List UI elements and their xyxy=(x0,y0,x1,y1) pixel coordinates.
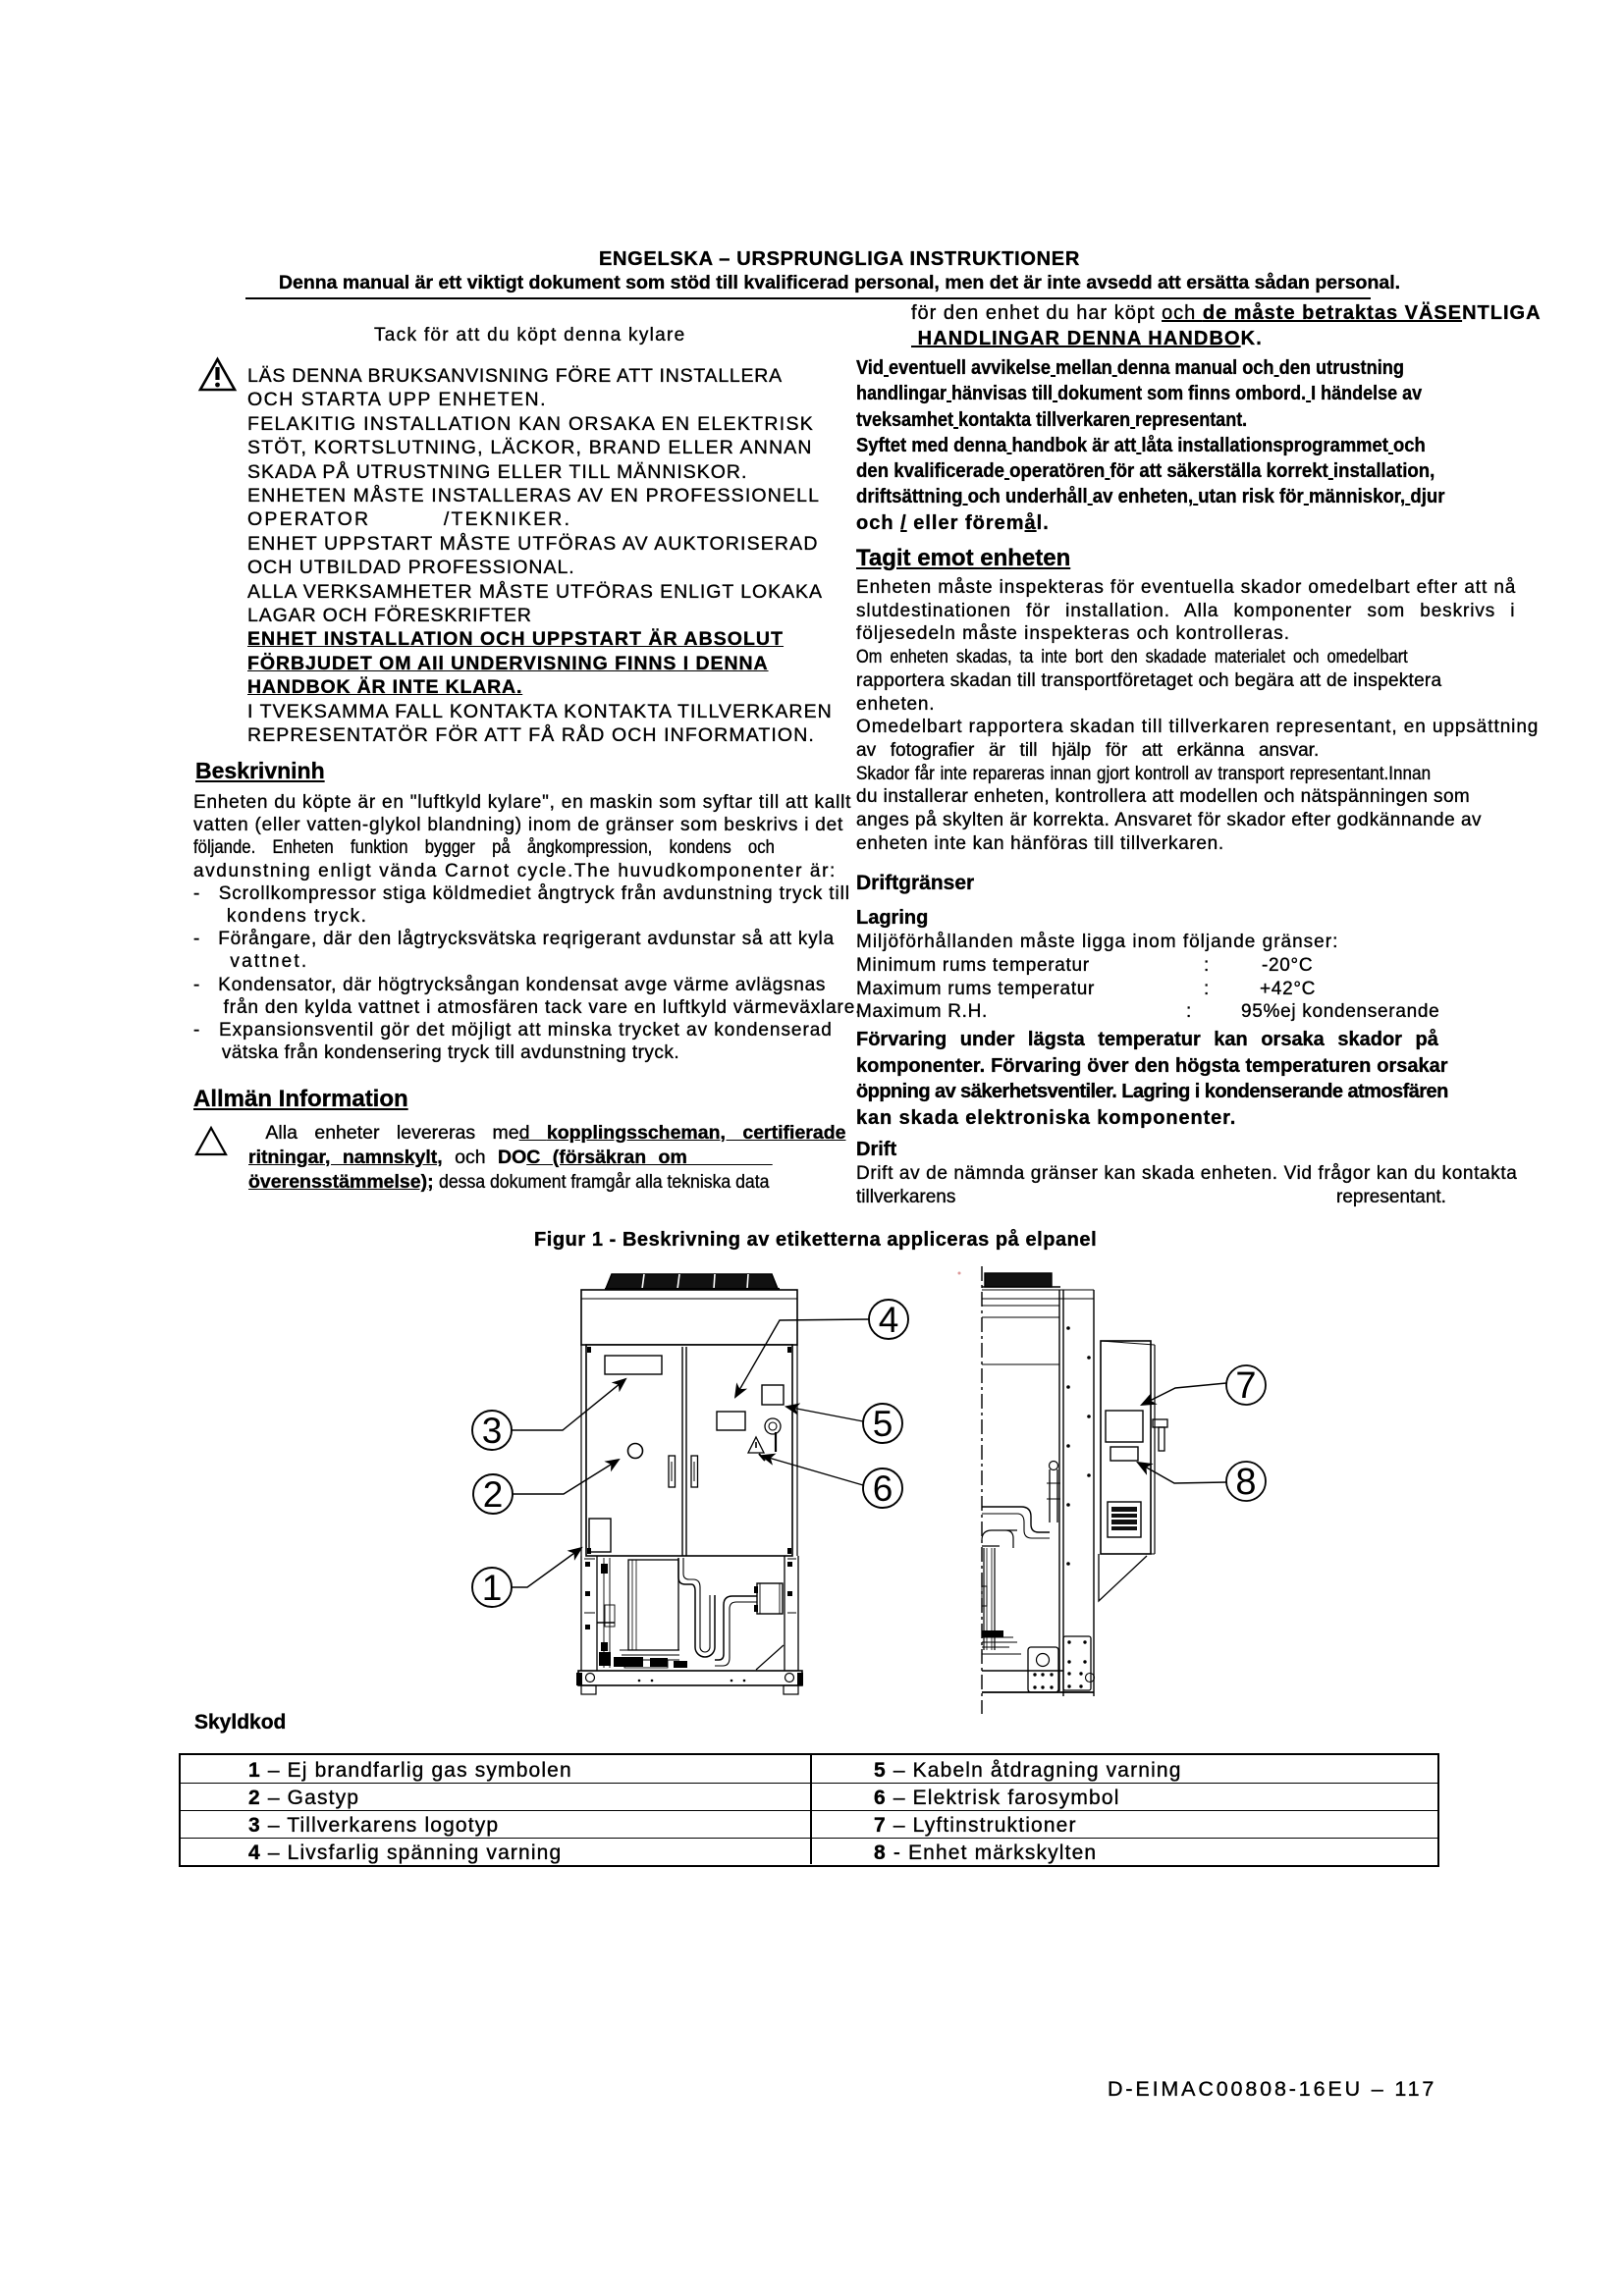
svg-text:2: 2 xyxy=(483,1474,504,1515)
svg-text:3: 3 xyxy=(482,1411,503,1451)
svg-text:8: 8 xyxy=(1235,1462,1256,1503)
svg-text:6: 6 xyxy=(873,1468,893,1509)
svg-text:7: 7 xyxy=(1235,1365,1256,1407)
svg-text:4: 4 xyxy=(879,1300,899,1340)
svg-text:5: 5 xyxy=(873,1404,893,1444)
svg-text:1: 1 xyxy=(482,1568,503,1608)
